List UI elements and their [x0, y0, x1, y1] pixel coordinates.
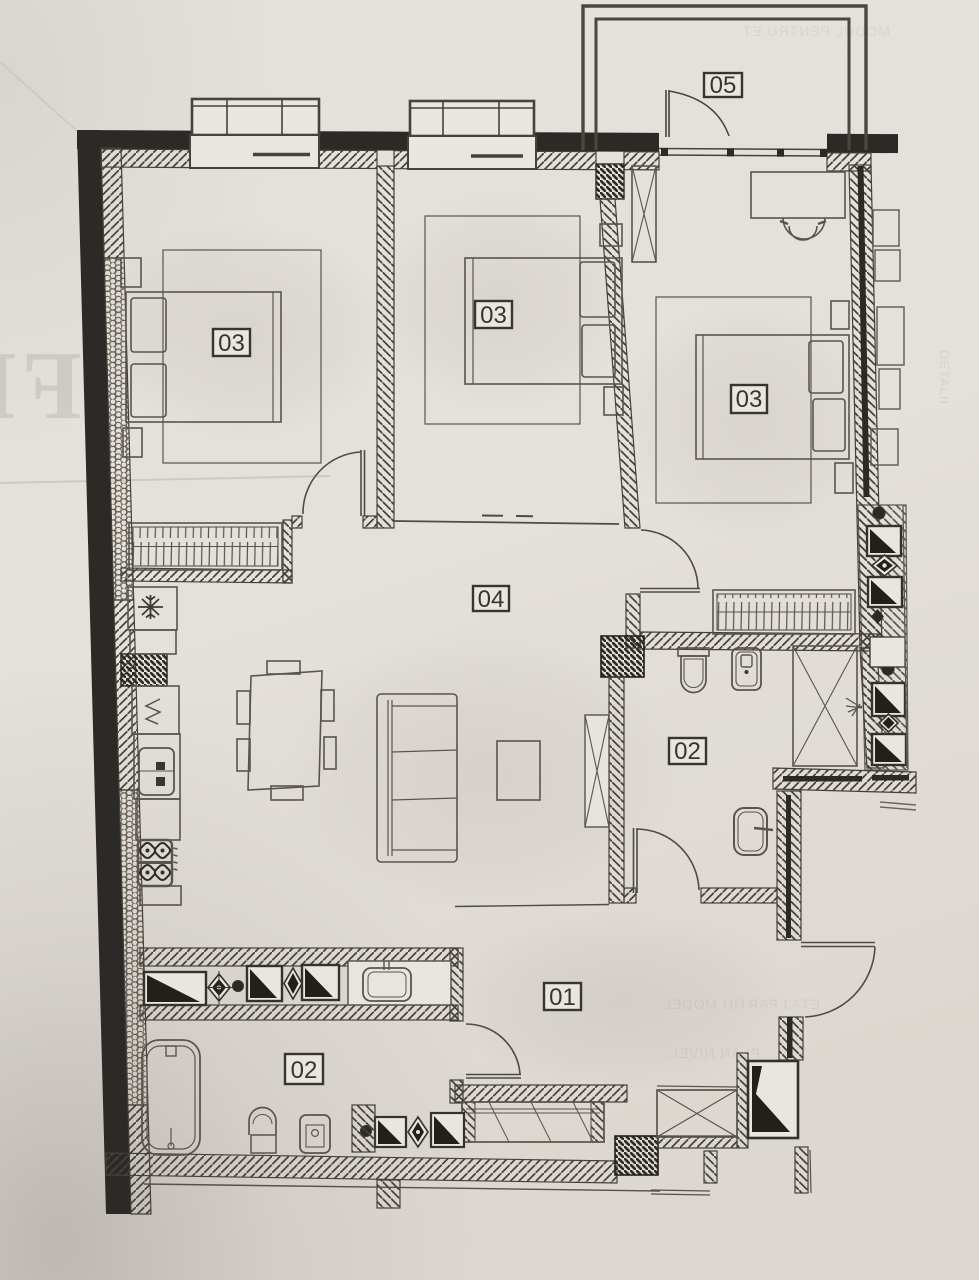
svg-text:05: 05 — [710, 72, 737, 99]
svg-text:03: 03 — [218, 330, 245, 357]
svg-text:01: 01 — [549, 984, 576, 1011]
svg-text:03: 03 — [736, 386, 763, 413]
svg-text:02: 02 — [291, 1057, 318, 1084]
svg-text:FRATE: FRATE — [0, 332, 82, 440]
svg-text:02: 02 — [674, 738, 701, 765]
svg-text:MODUL PENTRU ET: MODUL PENTRU ET — [742, 23, 890, 39]
svg-text:DETALII: DETALII — [937, 350, 952, 405]
svg-text:04: 04 — [478, 586, 505, 613]
svg-text:03: 03 — [480, 302, 507, 329]
